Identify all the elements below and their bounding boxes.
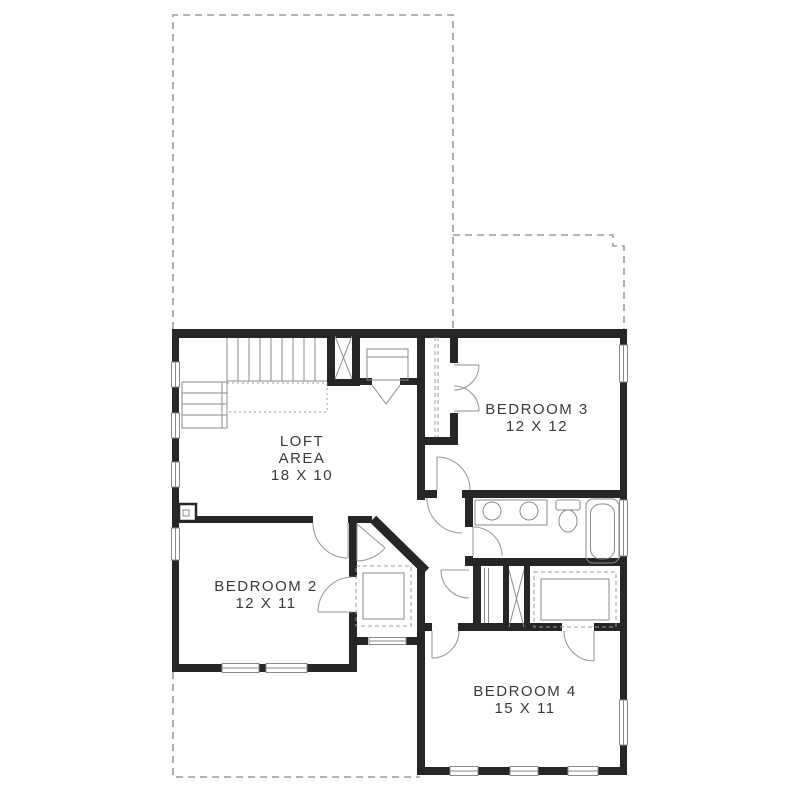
- room-name: BEDROOM 2: [191, 578, 341, 595]
- bedroom4-closet-wire-shelf: [534, 572, 616, 627]
- built-in-cabinet: [367, 349, 408, 380]
- room-name: LOFT: [227, 433, 377, 450]
- hall-closets-top: [335, 336, 408, 404]
- bedroom2-closet-wire-shelf: [356, 566, 411, 626]
- room-label-bedroom-2: BEDROOM 2 12 X 11: [191, 578, 341, 612]
- room-dims: 12 X 12: [462, 418, 612, 435]
- toilet-tank: [556, 500, 580, 510]
- stair-opening-dotted-rail: [227, 383, 327, 412]
- room-dims: 12 X 11: [191, 595, 341, 612]
- floor-plan-drawing: [0, 0, 800, 800]
- room-name: BEDROOM 4: [450, 683, 600, 700]
- hall-linen-and-closets: [356, 566, 616, 627]
- room-label-bedroom-3: BEDROOM 3 12 X 12: [462, 401, 612, 435]
- double-door-swing: [372, 385, 400, 404]
- bathroom-fixtures: [475, 499, 619, 563]
- fireplace-chase-box: [179, 504, 196, 521]
- room-dims: 18 X 10: [227, 467, 377, 484]
- lower-level-dashed-outline: [173, 15, 624, 777]
- sink-left: [483, 502, 501, 520]
- staircase: [182, 338, 327, 428]
- linen-closet-x-brace: [509, 570, 524, 627]
- toilet-bowl: [559, 510, 577, 532]
- room-dims: 15 X 11: [450, 700, 600, 717]
- sink-right: [520, 502, 538, 520]
- room-label-bedroom-4: BEDROOM 4 15 X 11: [450, 683, 600, 717]
- closet-x-brace: [335, 336, 352, 379]
- room-name-2: AREA: [227, 450, 377, 467]
- floor-plan: LOFT AREA 18 X 10 BEDROOM 3 12 X 12 BEDR…: [0, 0, 800, 800]
- room-label-loft: LOFT AREA 18 X 10: [227, 433, 377, 484]
- vanity-counter: [475, 500, 547, 525]
- room-name: BEDROOM 3: [462, 401, 612, 418]
